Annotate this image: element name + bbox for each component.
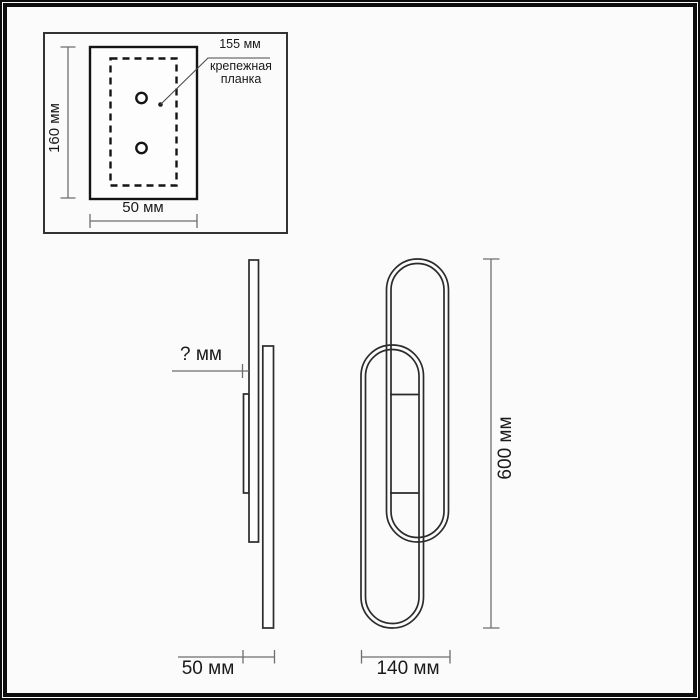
side-width-label: 50 мм [158, 659, 258, 679]
inset-height-label: 160 мм [47, 83, 65, 173]
plate-callout-name-line2: планка [186, 73, 296, 86]
front-width-label: 140 мм [353, 659, 463, 679]
front-mounting-plate-edges [390, 395, 419, 494]
upper-ring-outer [387, 259, 449, 542]
front-view [361, 259, 500, 664]
plate-callout-name: крепежная планка [186, 60, 296, 86]
side-lower-panel [263, 346, 274, 628]
side-view [172, 260, 275, 664]
upper-ring-inner [391, 264, 444, 538]
side-depth-dimension-line [172, 364, 249, 378]
inset-width-label: 50 мм [98, 200, 188, 216]
side-upper-panel [249, 260, 259, 542]
front-height-label: 600 мм [496, 388, 518, 508]
dimension-drawing: 160 мм 50 мм 155 мм крепежная планка ? м… [0, 0, 700, 700]
lower-ring-outer [361, 345, 424, 628]
lower-ring-inner [366, 350, 420, 624]
side-depth-label: ? мм [156, 345, 246, 365]
plate-callout-value: 155 мм [195, 38, 285, 51]
